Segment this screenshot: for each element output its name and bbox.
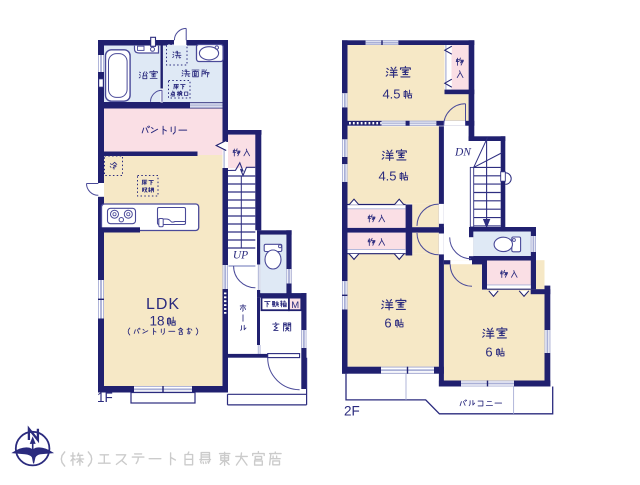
- svg-text:4.5: 4.5: [382, 86, 400, 101]
- svg-text:DN: DN: [454, 147, 472, 159]
- svg-text:6: 6: [485, 345, 492, 360]
- svg-text:2F: 2F: [344, 404, 360, 419]
- svg-text:6: 6: [384, 316, 391, 331]
- svg-text:UP: UP: [233, 250, 248, 262]
- svg-text:LDK: LDK: [146, 296, 180, 313]
- svg-text:18: 18: [149, 314, 164, 329]
- svg-text:M: M: [291, 300, 299, 311]
- svg-text:1F: 1F: [97, 390, 113, 405]
- svg-text:4.5: 4.5: [378, 169, 396, 184]
